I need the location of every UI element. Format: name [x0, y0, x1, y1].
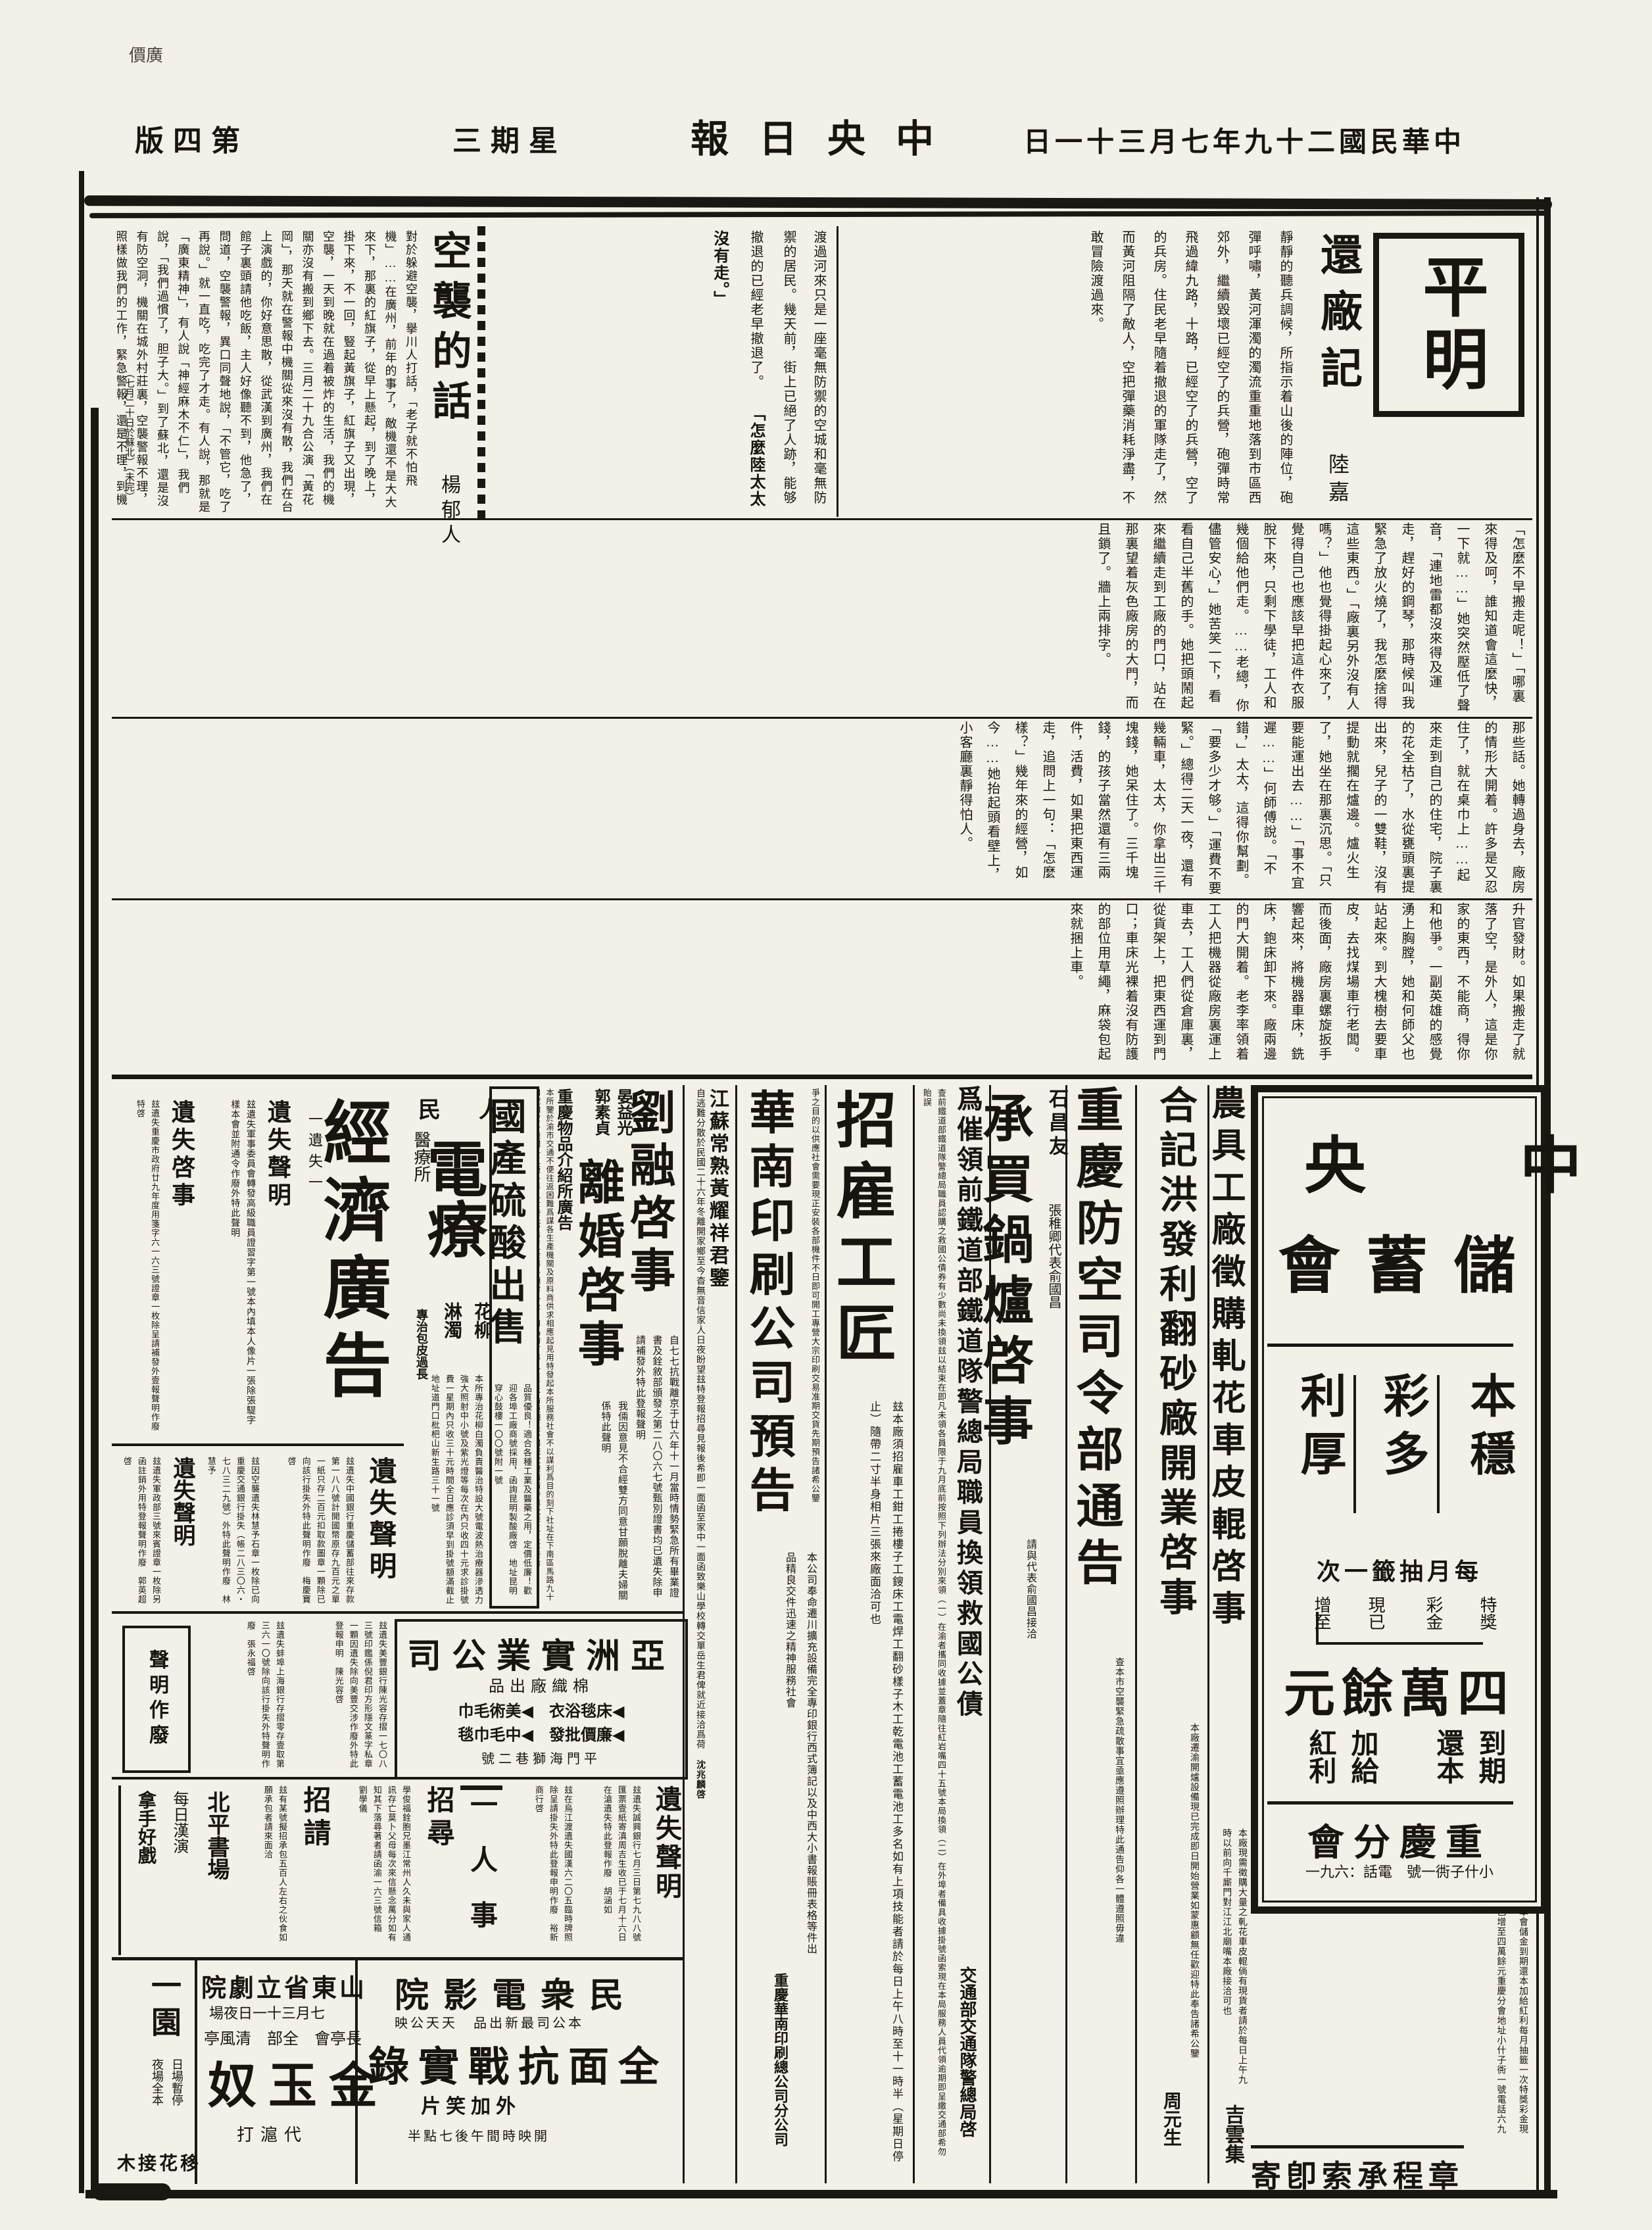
row4-zhaoxun-body: 學俊福銓胞兄墨江常州人久未與家人通訊存亡莫卜父母每次來信懸念萬分如有知其下落尋著… [337, 1785, 413, 1950]
beiping-line-2: 每日漢演 [168, 1791, 191, 1955]
renshi-section-box: 一 人 事 [460, 1785, 502, 1954]
row-rule-1 [112, 518, 1532, 520]
newspaper-page: 價廣 版四第 三期星 報日央中 日一十三月七年九十二國民華中 平明 還廠記 陸嘉… [0, 0, 1652, 2230]
product-3: 毯巾毛中 [458, 1727, 522, 1744]
guolu-who: 石昌友 [1042, 1088, 1071, 1159]
cuiling-body: 查前鐵道部鐵道隊警總局職員認購之救國公債券有少數尚未換領玆以結束在即凡未領各員限… [917, 1088, 948, 2160]
yiyuan-title: 一園 [142, 1970, 185, 2043]
lihun-name-1: 晏益光 [612, 1088, 635, 1136]
savings-name-line2: 會 蓄 儲 [1258, 1216, 1541, 1305]
liurong-headline: 劉融啓事 [639, 1088, 681, 1325]
row2-c-body: 玆遺失軍政部三號來賓證章一枚除另函註銷外用特登報聲明作廢 郭英超啓 [116, 1457, 163, 1605]
hejii-sig: 周元生 [1157, 2091, 1184, 2146]
minzhong-extra: 片笑加外 [421, 2090, 521, 2119]
row4-a-body: 玆遺失誠興銀行七月三日第七九八八號匯票壹紙寄滇周吉生收已于七月十六日在滄遺失特此… [580, 1785, 643, 1950]
row-rule-2 [112, 717, 1532, 719]
band2-body: 「怎麼不早搬走呢！」「哪裏來得及呵，誰知道會這麼快，一下就……」她突然壓低了聲音… [116, 522, 1531, 713]
guolu-rep: 張稚卿代表俞國昌 [1044, 1203, 1063, 1309]
savings-amount: 元餘萬四 [1258, 1653, 1541, 1726]
wupin-headline: 重慶物品介紹所廣告 [558, 1088, 575, 1273]
weekday-label: 三期星 [452, 117, 567, 159]
shandong-title: 院劇立省東山 [201, 1968, 367, 2004]
fangkong-body: 查本市空襲緊急疏散事宜亟應遵照辦理特此通告仰各一體遵照毋違 [1069, 1657, 1130, 2170]
savings-slogan-left: 利厚 [1286, 1372, 1352, 1488]
ad-rule-4 [989, 1085, 991, 2183]
row2-b-body: 玆因空襲遺失林慧予石章一枚除已向重慶交通銀行掛失（帳二八三〇六・七八三二九號）外… [199, 1457, 262, 1605]
shandong-feature: 奴玉金 [208, 2047, 389, 2117]
ad-rule-6 [825, 1085, 827, 2183]
renshi-section-label: 一 人 事 [462, 1790, 502, 1954]
header-rule-top [84, 195, 1552, 210]
yiyuan-line-2: 夜場全本 [149, 2058, 166, 2106]
row3-b-body: 玆遺失蚌埠上海銀行存摺零存壹取第三六一〇號除向該行掛失外特聲明作廢 張永福啓 [201, 1621, 287, 1772]
article-huanchang-body: 靜靜的聽兵調候，所指示着山後的陣位，砲彈呼嘯，黃河渾濁的濁流重重地落到市區西郊外… [843, 230, 1301, 517]
bottom-rule [85, 2190, 1557, 2198]
minzhong-tag: 映公天天 品出新最司公本 [395, 2012, 584, 2031]
header-rule-bottom [89, 210, 1549, 218]
xunren-headline: 江蘇常熟黃耀祥君鑒 [709, 1088, 731, 1305]
zhaogu-body: 玆本廠須招雇車工鉗工捲樓子工鎪床工電焊工翻砂樣子木工乾電池工蓄電池工多名如有上項… [829, 1401, 908, 2170]
ad-rule-3 [1065, 1085, 1067, 2183]
savings-slogan-right: 本穩 [1455, 1372, 1522, 1488]
yazhou-ad-box: 司公業實洲亞 品出廠織棉 巾毛術美◀ 衣浴毯床◀ 毯巾毛中◀ 發批價廉◀ 號二巷… [395, 1619, 688, 1780]
yazhou-sub: 品出廠織棉 [397, 1673, 685, 1696]
dianliao-headline: 電療 [433, 1138, 496, 1296]
jingji-item1-title: 遺失聲明 [260, 1100, 295, 1210]
column-rule-1 [837, 226, 838, 517]
savings-term-1: 到期 [1470, 1729, 1510, 1784]
triangle-marker-icon: ◀ [522, 1703, 533, 1720]
nongju-sig: 吉雲集 [1218, 2104, 1247, 2164]
savings-divider-2 [1267, 1801, 1513, 1805]
masthead-title: 平明 [1416, 253, 1482, 397]
jingji-headline: 經濟廣告 [328, 1097, 400, 1432]
row2-a-body: 玆遺失中國銀行重慶儲蓄部往來存款第一八八號計開國幣原存九百元之單一紙只存二百元扣… [266, 1457, 356, 1605]
band3-body: 那些話。她轉過身去，廠房的情形大開着。許多是又忍住了，就在桌巾上……起來走到自己… [116, 721, 1531, 896]
jingji-item2-body: 玆遺失重慶市政府廿九年度用箋字六一六三號證章一枚除呈請補發外壹報聲明作廢特啓 [116, 1100, 162, 1432]
huanan-sig: 重慶華南印刷總公司分公司 [764, 1973, 790, 2177]
band4-body: 升官發財。如果搬走了就落了空，是外人，這是你家的東西，不能商，得你和他爭。一副英… [116, 902, 1531, 1071]
savings-divider-1 [1267, 1344, 1513, 1347]
zhaogu-headline: 招雇工匠 [837, 1088, 905, 1384]
article-huanchang-title: 還廠記 [1315, 233, 1361, 402]
jingji-item2-title: 遺失啓事 [164, 1100, 199, 1210]
wupin-body: 本所鑒於渝市交通不便往返困難爲謀各生產機關及原料商供求相應起見用特發起本所服務社… [539, 1088, 556, 1605]
dianliao-body: 本所專治花柳白濁負責醫治特設大號電波熱治療器滲透力強大照射中小號及紫光燈等每次在… [409, 1374, 485, 1605]
savings-below-note: 本會儲金到期還本加給紅利每月抽籤一次特獎彩金現已增至四萬餘元重慶分會地址小什子衖… [1251, 1907, 1534, 2137]
row2-a-title: 遺失聲明 [360, 1457, 401, 1583]
article-huanchang-mid: 渡過河來只是一座毫無防禦的空城和毫無防禦的居民。幾天前，街上已絕了人跡，能够撤退… [492, 230, 834, 517]
row2-c-title: 遺失聲明 [166, 1457, 198, 1546]
yazhou-products-line1: 巾毛術美◀ 衣浴毯床◀ [397, 1698, 685, 1721]
article-kongxi-title: 空襲的話 [427, 230, 470, 430]
yazhou-address: 號二巷獅海門平 [397, 1748, 685, 1767]
classified-rule-1 [112, 1443, 404, 1446]
wavy-divider [477, 226, 485, 518]
row4-zhaoqing-body: 玆有某號擬招承包五百人左右之伙食如願承包者請來面洽 [250, 1785, 289, 1950]
triangle-marker-icon: ◀ [612, 1703, 624, 1720]
savings-footer-bar: 寄卽索承程章 [1251, 2145, 1464, 2196]
shandong-plays: 亭風清 部全 會亭長 [204, 2025, 362, 2048]
lihun-headline: 離婚啓事 [584, 1157, 631, 1388]
central-savings-ad: 央 中 會 蓄 儲 本穩 彩多 利厚 次一籤抽月每 特獎 彩金 現已 增至 元餘… [1251, 1085, 1548, 1914]
yazhou-headline: 司公業實洲亞 [397, 1628, 685, 1678]
yiyuan-line-1: 日場暫停 [168, 2058, 185, 2106]
savings-term-3: 加給 [1342, 1729, 1382, 1784]
dianliao-pre: 民 人 [418, 1092, 509, 1124]
savings-branch: 會分慶重 [1258, 1813, 1541, 1866]
liusuan-ad-box: 國產硫酸出售 品質優良！適合各種工業及醫藥之用，定價低廉！歡迎各埠工廠商號採用，… [489, 1086, 539, 1609]
dianliao-tag-1: 花柳 [468, 1302, 495, 1339]
jingji-item1-body: 玆遺失軍事委員會轉發高級職員證習字第一號本內填本人像片一張除張騠字樣本會並附通令… [197, 1100, 258, 1432]
xunren-sig: 沈兆麟啓 [695, 1760, 705, 1799]
dianliao-tag-2: 淋濁 [438, 1302, 464, 1339]
article-huanchang-author: 陸嘉 [1326, 453, 1349, 508]
minzhong-feature: 錄實戰抗面全 [368, 2033, 668, 2093]
date-line: 日一十三月七年九十二國民華中 [1023, 120, 1465, 160]
product-1: 巾毛術美 [458, 1703, 522, 1720]
beiping-line-3: 拿手好戲 [132, 1791, 158, 1955]
ad-rule-2 [1135, 1085, 1137, 2183]
huanan-headline: 華南印刷公司預告 [743, 1088, 801, 1536]
row4-b-body: 玆在烏江渡遺失國漢六二〇五臨時牌照除呈請掛失外特此登報申明作廢 裕新商行啓 [512, 1785, 575, 1950]
savings-slogan-bar-1 [1353, 1375, 1356, 1513]
row4-a-title: 遺失聲明 [647, 1785, 685, 1901]
beiping-ad: 北平書場 每日漢演 拿手好戲 [118, 1785, 243, 1955]
paper-title: 報日央中 [691, 108, 964, 163]
row3-a-body: 玆遺失美豐銀行陳光容存摺一七〇八三號印鑑係倪君印方形隱文篆字私章一顆因遺失除向美… [292, 1621, 389, 1772]
article-kongxi-footnote: （七月二十日於蘇北）（未完） [118, 368, 135, 517]
ad-rule-1 [1207, 1085, 1209, 2183]
nongju-headline: 農具工廠徵購軋花車皮輥啓事 [1211, 1085, 1250, 1815]
shandong-date: 場夜日一十三月七 [209, 2002, 325, 2023]
liurong-body: 自七七抗戰離京于廿六年十一月當時情勢緊急所有畢業證書及銓敘部頒發之第二八〇六七號… [637, 1335, 681, 1605]
yazhou-products-line2: 毯巾毛中◀ 發批價廉◀ [397, 1722, 685, 1745]
product-2: 衣浴毯床 [549, 1703, 612, 1720]
corner-note: 價廣 [129, 42, 163, 66]
triangle-marker-icon: ◀ [522, 1727, 533, 1744]
article-kongxi-body: 對於躲避空襲，擧川人打話，「老子就不怕飛機」……在廣州，前年的事了，敵機還不是大… [117, 230, 421, 517]
minzhong-time: 半點七後午間時映開 [408, 2125, 550, 2145]
edition-label: 版四第 [135, 117, 249, 159]
cuiling-headline: 爲催領前鐵道部鐵道隊警總局職員換領救國公債 [952, 1085, 986, 1822]
row4-zhaoxun-title: 招尋 [418, 1785, 458, 1851]
lihun-body: 我倆因意見不合經雙方同意甘願脫離夫婦關係特此聲明 [583, 1401, 630, 1605]
lihun-name-2: 郭素貞 [589, 1088, 612, 1136]
classified-rule-3 [112, 1777, 684, 1780]
left-border-outer [79, 171, 84, 2193]
left-border-inner [91, 408, 99, 2193]
savings-term-2: 還本 [1428, 1729, 1468, 1784]
guolu-headline: 承買鍋爐啓事 [993, 1092, 1040, 1513]
xunren-body-text: 自逃難分散於民國二十六年冬離開家鄉至今杳無音信家人日夜盼望玆特登報招尋見報後希即… [695, 1088, 705, 1749]
hejii-headline: 合記洪發利翻砂廠開業啓事 [1150, 1085, 1202, 1710]
classified-rule-2 [112, 1611, 684, 1614]
ads-top-rule [112, 1075, 1532, 1079]
product-4: 發批價廉 [549, 1727, 612, 1744]
nongju-body: 本廠現需徵購大量之軋花車皮輥倘有現貨者請於每日上午九時以前向千廝門對江江北廟嘴本… [1213, 1828, 1250, 2091]
savings-term-4: 紅利 [1300, 1729, 1340, 1784]
savings-draw-line: 次一籤抽月每 [1258, 1553, 1541, 1587]
theater-top-rule [112, 1957, 684, 1960]
masthead-box: 平明 [1373, 233, 1524, 417]
savings-slogan-bar-2 [1437, 1375, 1440, 1513]
triangle-marker-icon: ◀ [612, 1727, 624, 1744]
yiyuan-feature: 木接花移 [117, 2149, 201, 2175]
row4-zhaoqing-title: 招請 [295, 1785, 335, 1851]
fangkong-headline: 重慶防空司令部通告 [1075, 1085, 1130, 1644]
liusuan-headline: 國產硫酸出售 [497, 1097, 531, 1373]
row-rule-3 [112, 898, 1532, 900]
bottom-blob [92, 2183, 171, 2200]
ad-rule-5 [913, 1085, 915, 2183]
savings-slogan-mid: 彩多 [1369, 1372, 1435, 1488]
liusuan-body: 品質優良！適合各種工業及醫藥之用，定價低廉！歡迎各埠工廠商號採用，函詢昆明製酸廠… [495, 1384, 534, 1601]
minzhong-title: 院影電衆民 [395, 1968, 638, 2017]
xunren-body: 自逃難分散於民國二十六年冬離開家鄉至今杳無音信家人日夜盼望玆特登報招尋見報後希即… [687, 1088, 708, 1970]
huanan-body: 本公司奉命遷川擴充設備完全專印銀行西式簿記以及中西大小書報賬冊表格等件出品精良交… [739, 1552, 821, 1960]
row3-void-title: 聲明作廢 [142, 1649, 171, 1749]
jingji-label: 一遺失一 [304, 1111, 325, 1196]
ad-rule-7 [735, 1085, 737, 2183]
dianliao-note: 專治包皮過長 [413, 1309, 430, 1380]
row3-void-box: 聲明作廢 [122, 1626, 191, 1773]
cuiling-sig: 交通部交通隊警總局啓 [955, 1966, 979, 2137]
hejii-body: 本廠遷渝開爐設備現已完成即日開始營業如蒙惠顧無任歡迎特此奉告諸希公鑒 [1139, 1723, 1202, 2078]
shandong-extra: 打滬代 [237, 2121, 308, 2146]
guolu-body: 請與代表俞國昌接洽 [1013, 1539, 1039, 1933]
beiping-line-1: 北平書場 [200, 1791, 232, 1955]
savings-address: 一九六：話電 號一衖子什小 [1258, 1860, 1541, 1881]
savings-name-line1: 央 中 [1258, 1116, 1541, 1205]
savings-connector [1316, 1612, 1483, 1645]
